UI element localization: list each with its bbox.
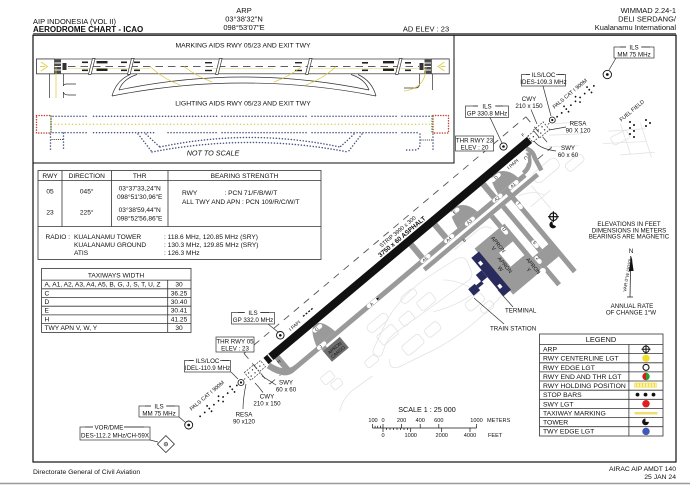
svg-text:RWY CENTERLINE LGT: RWY CENTERLINE LGT <box>543 356 619 363</box>
svg-text:FEET: FEET <box>488 433 503 439</box>
svg-text:098°53'07"E: 098°53'07"E <box>223 23 264 32</box>
svg-text:A, A1, A2, A3, A4, A5, B, G, J: A, A1, A2, A3, A4, A5, B, G, J, S, T, U,… <box>45 282 161 289</box>
svg-text:AD ELEV : 23: AD ELEV : 23 <box>403 25 449 34</box>
svg-text:03°37'33,24"N: 03°37'33,24"N <box>119 185 161 193</box>
svg-text:FUEL FIELD: FUEL FIELD <box>619 99 646 123</box>
svg-text:RESA: RESA <box>236 412 254 419</box>
svg-text:THR RWY 23: THR RWY 23 <box>456 137 494 144</box>
svg-text:TWY APN V, W, Y: TWY APN V, W, Y <box>45 325 98 332</box>
svg-text:MARKING AIDS RWY 05/23 AND EXI: MARKING AIDS RWY 05/23 AND EXIT TWY <box>175 43 311 50</box>
svg-text:RADIO :: RADIO : <box>46 234 71 241</box>
svg-text:TRAIN STATION: TRAIN STATION <box>490 326 536 333</box>
svg-text:: PCN 71/F/B/W/T: : PCN 71/F/B/W/T <box>225 190 278 197</box>
svg-text:TERMINAL: TERMINAL <box>505 308 537 315</box>
svg-text:098°51'30,96"E: 098°51'30,96"E <box>117 193 163 201</box>
svg-text:KUALANAMU TOWER: KUALANAMU TOWER <box>74 234 141 241</box>
svg-text:0: 0 <box>381 433 384 439</box>
svg-text:TAXIWAY MARKING: TAXIWAY MARKING <box>543 410 606 417</box>
svg-text:ARP: ARP <box>543 347 557 354</box>
svg-text:E: E <box>45 308 50 315</box>
svg-text:OF CHANGE 1°W: OF CHANGE 1°W <box>606 310 656 317</box>
svg-text:TOWER: TOWER <box>543 420 568 427</box>
svg-text:1000: 1000 <box>470 418 482 424</box>
svg-text:N: N <box>629 248 634 255</box>
svg-text:ILS/LOC: ILS/LOC <box>196 358 220 365</box>
svg-text:210 x 150: 210 x 150 <box>515 103 543 110</box>
svg-text:30: 30 <box>175 325 183 332</box>
svg-text:90 x120: 90 x120 <box>233 419 256 426</box>
svg-text:41.25: 41.25 <box>171 316 188 323</box>
svg-text:D: D <box>45 299 50 306</box>
svg-text:METERS: METERS <box>487 418 511 424</box>
svg-text:SWY: SWY <box>561 145 575 152</box>
svg-text:90 X 120: 90 X 120 <box>566 128 591 135</box>
svg-text:THR: THR <box>133 173 147 180</box>
svg-text:PALS CAT I 900M: PALS CAT I 900M <box>189 380 226 413</box>
svg-text:TWY EDGE LGT: TWY EDGE LGT <box>543 429 594 436</box>
svg-text:0: 0 <box>381 418 384 424</box>
svg-text:2000: 2000 <box>435 433 447 439</box>
svg-text:TAXIWAYS WIDTH: TAXIWAYS WIDTH <box>88 273 145 280</box>
svg-text:045°: 045° <box>80 188 94 196</box>
svg-text:C: C <box>45 290 50 297</box>
svg-text:RWY: RWY <box>182 190 198 197</box>
svg-text:RWY END AND THR LGT: RWY END AND THR LGT <box>543 374 622 381</box>
svg-text:600: 600 <box>434 418 443 424</box>
svg-text:STOP BARS: STOP BARS <box>543 392 582 399</box>
svg-text:GP 330.8 MHz: GP 330.8 MHz <box>467 111 507 118</box>
svg-text:NOT TO SCALE: NOT TO SCALE <box>187 149 240 158</box>
svg-text:ATIS: ATIS <box>74 250 89 257</box>
svg-text:AERODROME CHART - ICAO: AERODROME CHART - ICAO <box>33 25 143 34</box>
svg-text:23: 23 <box>46 210 54 217</box>
svg-text:H: H <box>45 316 50 323</box>
svg-text:RWY EDGE LGT: RWY EDGE LGT <box>543 365 595 372</box>
svg-text:DIRECTION: DIRECTION <box>69 173 106 180</box>
svg-text:SCALE 1 : 25 000: SCALE 1 : 25 000 <box>398 405 456 414</box>
svg-text:IDEL-110.9 MHz: IDEL-110.9 MHz <box>185 365 230 372</box>
svg-text:Directorate General of Civil A: Directorate General of Civil Aviation <box>33 469 140 476</box>
svg-text:25 JAN 24: 25 JAN 24 <box>644 474 676 481</box>
svg-text:ILS: ILS <box>629 44 638 51</box>
svg-text:BEARINGS ARE MAGNETIC: BEARINGS ARE MAGNETIC <box>589 234 670 241</box>
svg-text:RWY: RWY <box>42 173 58 180</box>
svg-text:30: 30 <box>175 282 183 289</box>
svg-text:36.25: 36.25 <box>171 290 188 297</box>
svg-text:: 118.6 MHz, 120.85 MHz (SRY): : 118.6 MHz, 120.85 MHz (SRY) <box>164 234 258 241</box>
svg-text:RESA: RESA <box>570 121 588 128</box>
svg-text:RWY HOLDING POSITION: RWY HOLDING POSITION <box>543 383 626 390</box>
svg-text:ELEV : 20: ELEV : 20 <box>461 144 489 151</box>
svg-text:IDES-109.3 MHz: IDES-109.3 MHz <box>520 79 566 86</box>
svg-text:30.41: 30.41 <box>171 308 188 315</box>
svg-text:: 130.3 MHz, 129.85 MHz (SRY): : 130.3 MHz, 129.85 MHz (SRY) <box>164 242 258 249</box>
svg-text:CWY: CWY <box>260 394 274 401</box>
svg-text:: 126.3 MHz: : 126.3 MHz <box>164 250 200 257</box>
svg-text:ILS/LOC: ILS/LOC <box>532 72 556 79</box>
svg-text:MM 75 MHz: MM 75 MHz <box>617 51 650 58</box>
svg-text:60 x 60: 60 x 60 <box>276 387 297 394</box>
svg-text:ILS: ILS <box>482 103 491 110</box>
svg-text:VAR 0°W (2020): VAR 0°W (2020) <box>622 258 633 292</box>
svg-text:60 x 60: 60 x 60 <box>558 152 579 159</box>
svg-text:098°52'56,86"E: 098°52'56,86"E <box>117 215 163 223</box>
svg-text:210 x 150: 210 x 150 <box>253 401 281 408</box>
svg-text:1000: 1000 <box>404 433 416 439</box>
svg-text:225°: 225° <box>80 209 94 217</box>
svg-text:30.40: 30.40 <box>171 299 188 306</box>
svg-text:AIRAC AIP AMDT 140: AIRAC AIP AMDT 140 <box>609 466 676 473</box>
svg-text:DES-112.2 MHz/CH-59X: DES-112.2 MHz/CH-59X <box>81 432 149 439</box>
svg-text:200: 200 <box>397 418 406 424</box>
svg-text:03°38'59,44"N: 03°38'59,44"N <box>119 206 161 214</box>
svg-text:VOR/DME: VOR/DME <box>95 424 124 431</box>
svg-text:Kualanamu International: Kualanamu International <box>595 23 677 32</box>
svg-text:SWY: SWY <box>279 380 293 387</box>
svg-text:4000: 4000 <box>464 433 476 439</box>
svg-text:MM 75 MHz: MM 75 MHz <box>142 410 175 417</box>
svg-text:KUALANAMU GROUND: KUALANAMU GROUND <box>74 242 146 249</box>
svg-text:THR RWY 05: THR RWY 05 <box>216 338 254 345</box>
svg-text:05: 05 <box>46 189 54 196</box>
svg-text:CWY: CWY <box>522 96 536 103</box>
svg-text:ELEV : 23: ELEV : 23 <box>221 345 249 352</box>
svg-text:F: F <box>520 132 526 138</box>
svg-text:SWY LGT: SWY LGT <box>543 401 573 408</box>
svg-text:LEGEND: LEGEND <box>586 335 616 344</box>
svg-text:ILS: ILS <box>154 403 163 410</box>
svg-text:100: 100 <box>368 418 377 424</box>
svg-text:BEARING STRENGTH: BEARING STRENGTH <box>211 173 279 180</box>
svg-text:ALL TWY AND APN : PCN 109/R/C/: ALL TWY AND APN : PCN 109/R/C/W/T <box>182 199 300 206</box>
svg-text:400: 400 <box>416 418 425 424</box>
svg-text:ILS: ILS <box>248 310 257 317</box>
svg-text:LIGHTING AIDS RWY 05/23 AND EX: LIGHTING AIDS RWY 05/23 AND EXIT TWY <box>175 101 311 108</box>
svg-text:GP 332.0 MHz: GP 332.0 MHz <box>233 317 273 324</box>
